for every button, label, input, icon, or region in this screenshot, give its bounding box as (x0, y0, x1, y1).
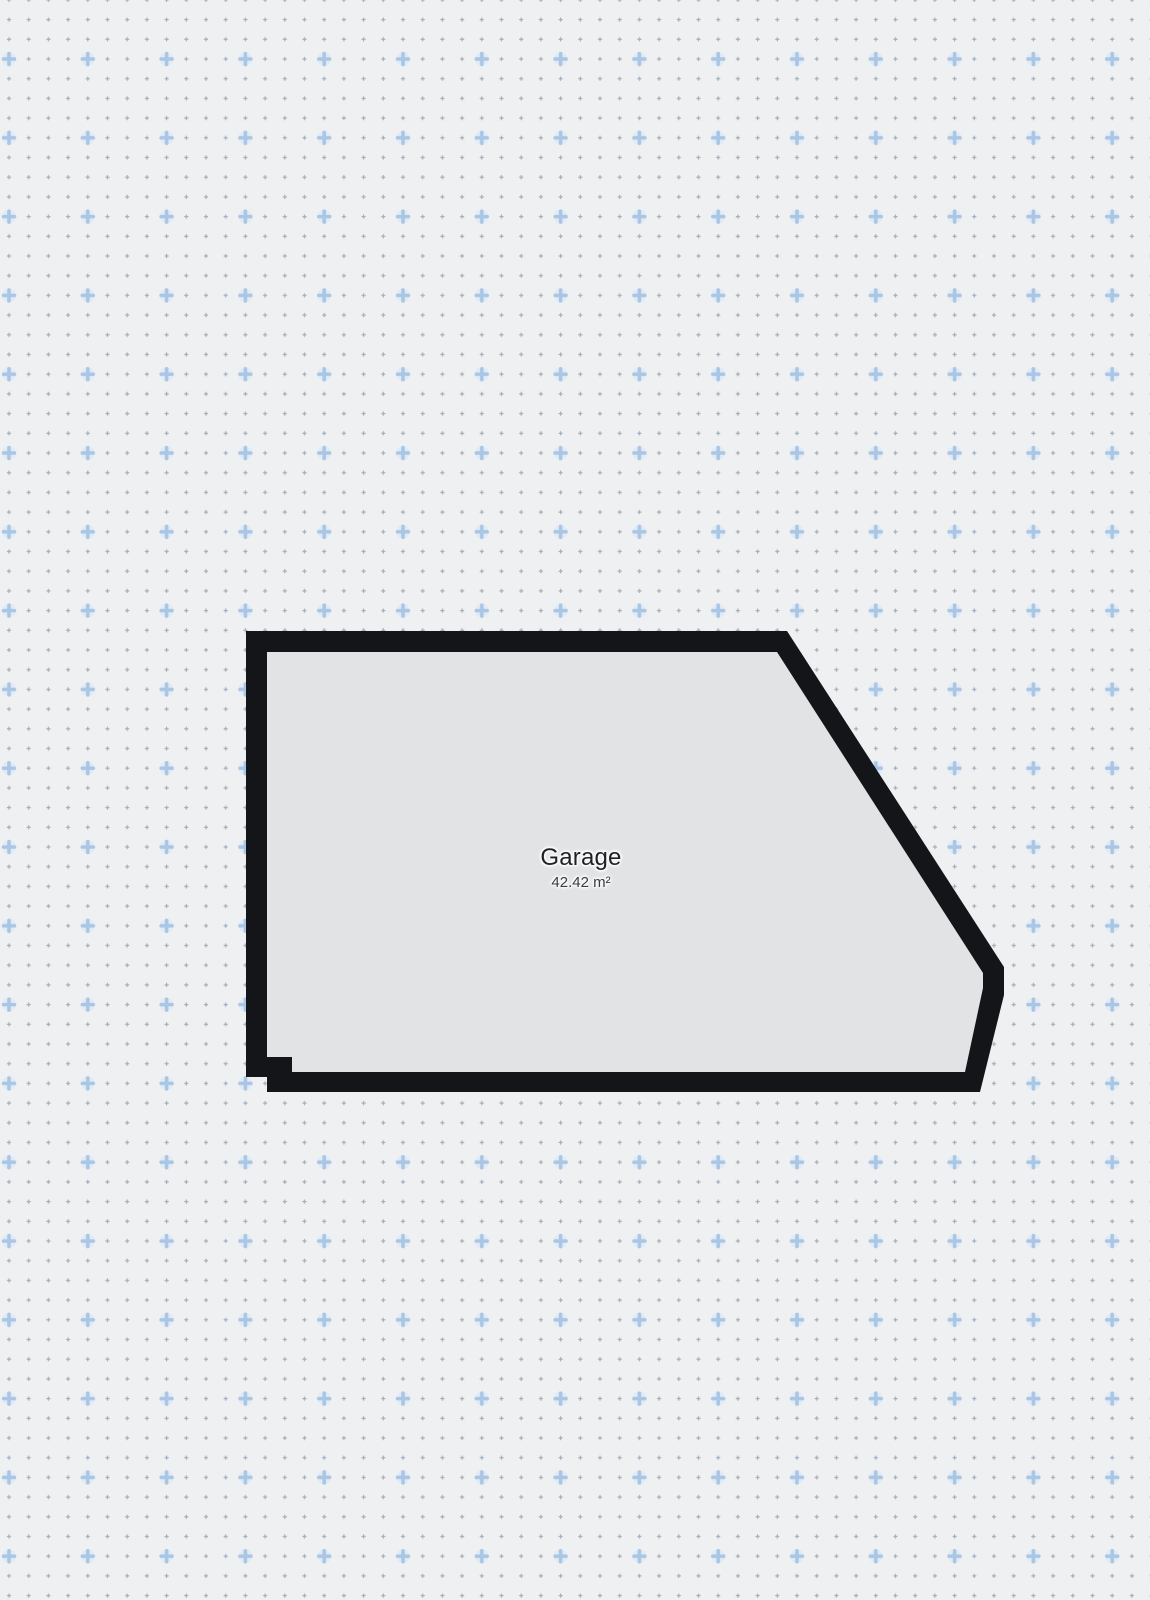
floorplan-svg (0, 0, 1150, 1600)
room-name: Garage (431, 843, 731, 873)
room-label[interactable]: Garage 42.42 m² (431, 843, 731, 892)
room-area: 42.42 m² (431, 874, 731, 892)
floorplan-canvas: Garage 42.42 m² (0, 0, 1150, 1600)
